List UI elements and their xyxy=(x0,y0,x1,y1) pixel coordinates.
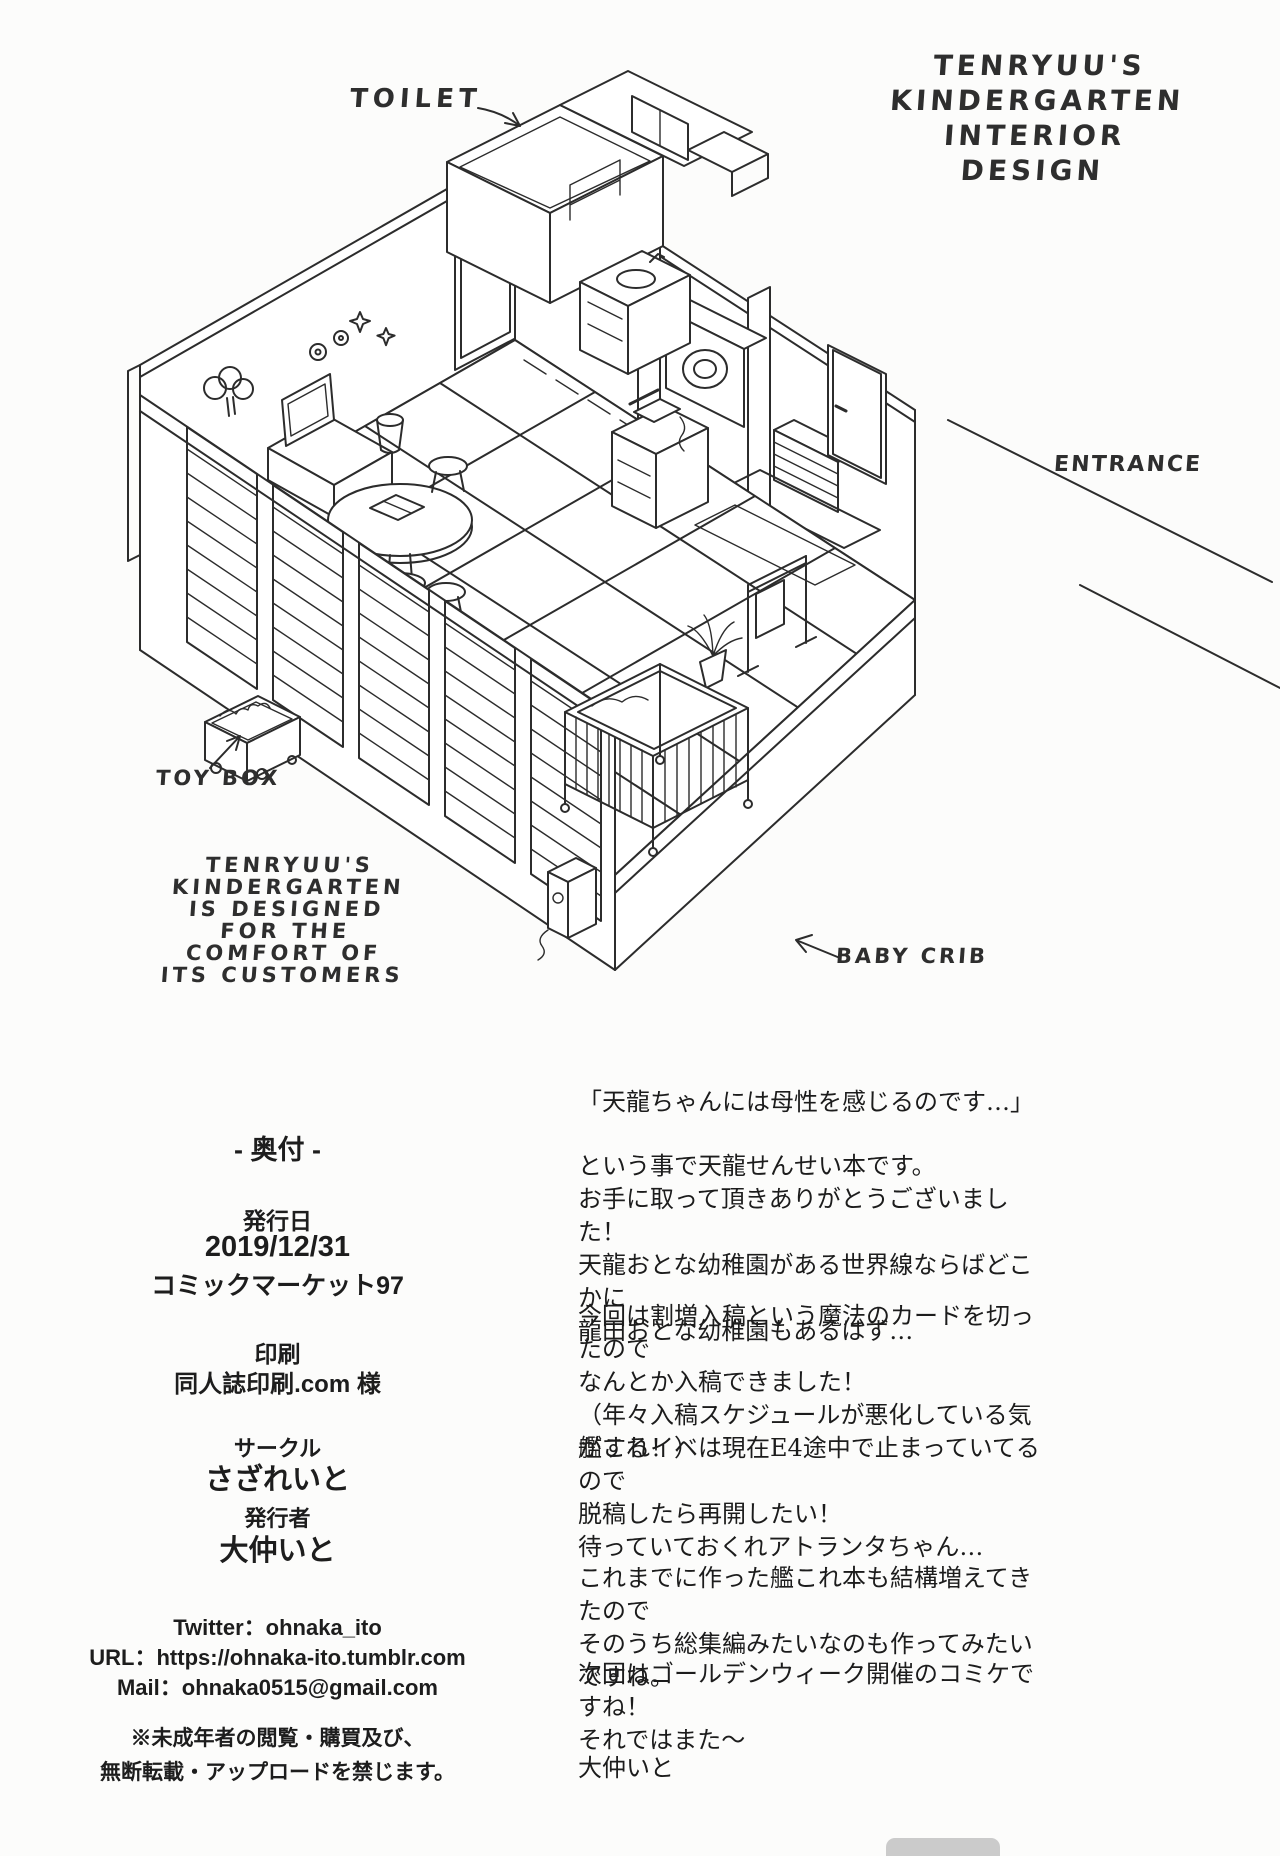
publisher-name: 大仲いと xyxy=(40,1527,515,1569)
corridor-wall-2 xyxy=(748,287,770,519)
scan-artifact xyxy=(886,1838,1000,1856)
printer-name: 同人誌印刷.com 様 xyxy=(40,1364,515,1399)
circle-name: さざれいと xyxy=(40,1456,515,1498)
label-baby-crib: BABY CRIB xyxy=(835,944,989,968)
doujinshi-colophon-page: TENRYUU'S KINDERGARTEN INTERIOR DESIGN T… xyxy=(0,0,1280,1856)
toilet-arrow xyxy=(478,108,520,126)
issue-date: 2019/12/31 xyxy=(40,1231,515,1264)
afterword-quote: 「天龍ちゃんには母性を感じるのです…」 xyxy=(578,1086,1048,1119)
age-restriction-notice: ※未成年者の閲覧・購買及び、 無断転載・アップロードを禁じます。 xyxy=(40,1722,515,1790)
author-signature: 大仲いと xyxy=(578,1752,1048,1785)
colophon-heading: - 奥付 - xyxy=(40,1128,515,1167)
website-url: URL：https://ohnaka-ito.tumblr.com xyxy=(40,1640,515,1672)
illustration-title: TENRYUU'S KINDERGARTEN INTERIOR DESIGN xyxy=(863,48,1209,188)
twitter-handle: Twitter：ohnaka_ito xyxy=(40,1610,515,1642)
label-toy-box: TOY BOX xyxy=(155,766,281,790)
afterword-paragraph: 艦これイベは現在E4途中で止まっていてるので 脱稿したら再開したい！ 待っていて… xyxy=(578,1432,1048,1564)
mail-address: Mail：ohnaka0515@gmail.com xyxy=(40,1670,515,1702)
label-entrance: ENTRANCE xyxy=(1053,452,1203,477)
event-name: コミックマーケット97 xyxy=(40,1266,515,1302)
illustration-caption: TENRYUU'S KINDERGARTEN IS DESIGNED FOR T… xyxy=(133,854,438,986)
label-toilet: TOILET xyxy=(349,84,483,114)
afterword-paragraph: 次回はゴールデンウィーク開催のコミケですね！ それではまた～ xyxy=(578,1658,1048,1757)
baby-crib-arrow xyxy=(796,935,840,958)
